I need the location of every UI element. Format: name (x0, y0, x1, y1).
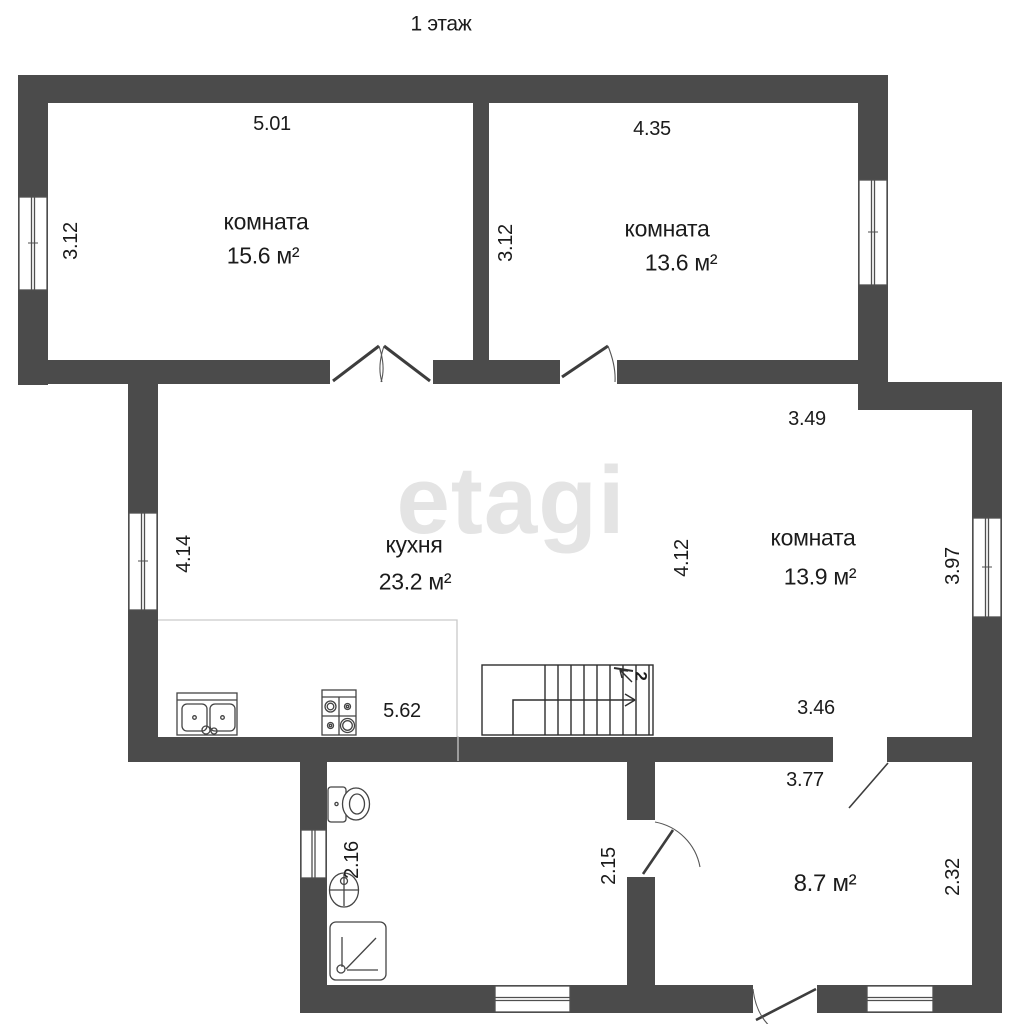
dim-room-mid-bottom: 3.46 (797, 698, 835, 718)
room-tl-name: комната (224, 211, 309, 234)
room-mid-area: 13.9 м² (784, 566, 857, 589)
dim-bathroom-right: 2.15 (599, 847, 619, 885)
kitchen-name: кухня (386, 534, 443, 557)
door-hall-top (849, 763, 888, 808)
floor-plan: 1 этаж etagi (0, 0, 1024, 1024)
room-tr-area: 13.6 м² (645, 252, 718, 275)
kitchen-area: 23.2 м² (379, 571, 452, 594)
shower-icon (330, 922, 386, 980)
door-double-room-tl (333, 346, 430, 382)
door-entrance (753, 989, 816, 1024)
window-room-tl (19, 197, 47, 290)
room-tl-area: 15.6 м² (227, 245, 300, 268)
dim-room-tl-top: 5.01 (253, 114, 291, 134)
room-mid-name: комната (771, 527, 856, 550)
toilet-icon (328, 787, 370, 822)
dim-kitchen-bottom: 5.62 (383, 701, 421, 721)
dim-room-mid-left: 4.12 (672, 539, 692, 577)
hall-area: 8.7 м² (794, 872, 857, 896)
window-bathroom-bottom (495, 986, 570, 1012)
kitchen-sink-icon (177, 693, 237, 735)
dim-hall-top: 3.77 (786, 770, 824, 790)
window-room-mid (973, 518, 1001, 617)
staircase (482, 665, 653, 735)
dim-kitchen-left: 4.14 (174, 535, 194, 573)
dim-bathroom-left: 2.16 (342, 841, 362, 879)
dim-room-tr-top: 4.35 (633, 119, 671, 139)
door-bathroom (643, 822, 700, 874)
stairs-floor-number: 2 (633, 671, 650, 680)
door-room-tr (562, 346, 615, 382)
dim-room-tl-left: 3.12 (61, 222, 81, 260)
window-kitchen (129, 513, 157, 610)
kitchen-zone-line (158, 620, 458, 761)
dim-hall-right: 2.32 (943, 858, 963, 896)
dim-room-tr-left: 3.12 (496, 224, 516, 262)
window-hall-bottom (867, 986, 933, 1012)
room-tr-name: комната (625, 218, 710, 241)
dim-room-mid-top: 3.49 (788, 409, 826, 429)
window-room-tr (859, 180, 887, 285)
plan-graphics (0, 0, 1024, 1024)
window-bathroom-left (301, 830, 326, 878)
stove-icon (322, 690, 356, 735)
dim-room-mid-right: 3.97 (943, 547, 963, 585)
